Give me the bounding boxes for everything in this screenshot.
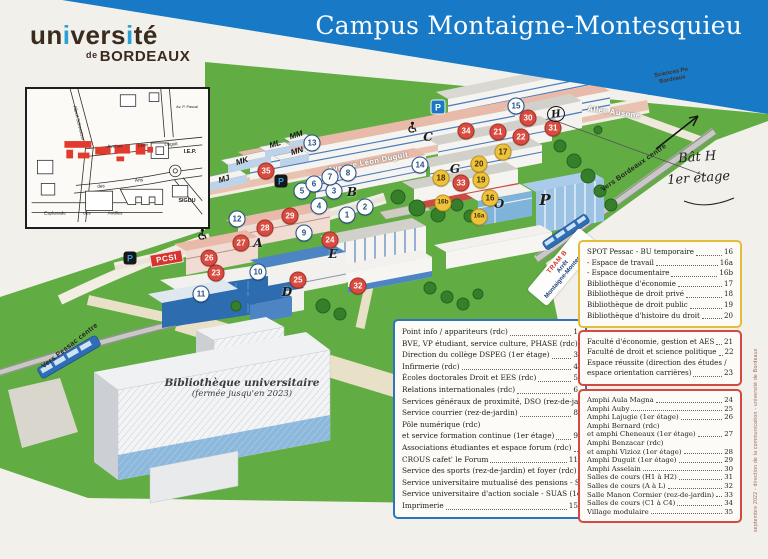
dotted-leader — [462, 369, 572, 370]
map-marker[interactable]: 33 — [453, 175, 470, 192]
map-marker[interactable]: 34 — [458, 123, 475, 140]
map-marker[interactable]: 1 — [339, 207, 356, 224]
legend-row[interactable]: Faculté de droit et science politique22 — [587, 347, 733, 357]
dotted-leader — [678, 286, 722, 287]
dotted-leader — [668, 488, 723, 489]
dotted-leader — [574, 451, 578, 452]
legend-label: Imprimerie — [402, 500, 444, 512]
legend-row[interactable]: Salle Manon Cormier (rez-de-jardin)33 — [587, 491, 733, 500]
legend-row[interactable]: Amphi Aula Magna24 — [587, 396, 733, 405]
legend-row[interactable]: BVE, VP étudiant, service culture, PHASE… — [402, 338, 578, 350]
legend-label: Espace réussite (direction des études / — [587, 358, 727, 368]
legend-label: Pôle numérique (rdc) — [402, 419, 480, 431]
legend-row[interactable]: et service formation continue (1er étage… — [402, 430, 578, 442]
dotted-leader — [538, 381, 571, 382]
legend-label: BVE, VP étudiant, service culture, PHASE… — [402, 338, 578, 350]
legend-label: Salle Manon Cormier (rez-de-jardin) — [587, 491, 714, 500]
marker-number: 22 — [517, 133, 526, 141]
marker-number: 27 — [237, 239, 246, 247]
dotted-leader — [690, 308, 722, 309]
legend-label: Bibliothèque de droit public — [587, 300, 688, 311]
legend-label: Point info / appariteurs (rdc) — [402, 326, 508, 338]
legend-number: 22 — [725, 347, 734, 357]
dotted-leader — [651, 513, 723, 514]
marker-number: 13 — [308, 139, 317, 147]
legend-number: 20 — [724, 311, 733, 322]
legend-label: Amphi Benzacar (rdc) — [587, 439, 663, 448]
legend-row[interactable]: Salles de cours (A à L)32 — [587, 482, 733, 491]
legend-row[interactable]: Pôle numérique (rdc) — [402, 419, 578, 431]
legend-label: Service universitaire mutualisé des pens… — [402, 477, 598, 489]
legend-label: espace orientation carrières) — [587, 368, 691, 378]
dotted-leader — [656, 402, 722, 403]
legend-label: Service courrier (rez-de-jardin) — [402, 407, 518, 419]
legend-row[interactable]: Amphi Benzacar (rdc) — [587, 439, 733, 448]
legend-label: Amphi Duguit (1er étage) — [587, 456, 677, 465]
marker-number: 15 — [512, 102, 521, 110]
legend-row[interactable]: Amphi Bernard (rdc) — [587, 422, 733, 431]
legend-row[interactable]: Service universitaire mutualisé des pens… — [402, 477, 578, 489]
legend-row[interactable]: Point info / appariteurs (rdc)1 — [402, 326, 578, 338]
map-marker[interactable]: 26 — [201, 250, 218, 267]
legend-row[interactable]: Imprimerie15 — [402, 500, 578, 512]
legend-label: CROUS cafet' le Forum — [402, 454, 488, 466]
legend-row[interactable]: Service des sports (rez-de-jardin) et fo… — [402, 465, 578, 477]
dotted-leader — [671, 276, 717, 277]
map-marker[interactable]: 7 — [322, 169, 339, 186]
legend-label: - Espace de travail — [587, 258, 654, 269]
legend-row[interactable]: Village modulaire35 — [587, 508, 733, 517]
map-marker[interactable]: 16b — [435, 195, 452, 212]
marker-number: 18 — [437, 174, 446, 182]
marker-number: 10 — [254, 268, 263, 276]
legend-number: 24 — [724, 396, 733, 405]
legend-amphitheatres: Amphi Aula Magna24Amphi Auby25Amphi Laju… — [578, 389, 742, 523]
legend-label: Village modulaire — [587, 508, 649, 517]
legend-label: Services généraux de proximité, DSO (rez… — [402, 396, 596, 408]
dotted-leader — [520, 416, 572, 417]
legend-number: 16a — [720, 258, 733, 269]
legend-row[interactable]: - Espace documentaire16b — [587, 268, 733, 279]
marker-number: 16a — [474, 214, 485, 221]
legend-label: et service formation continue (1er étage… — [402, 430, 554, 442]
map-marker[interactable]: 23 — [208, 265, 225, 282]
legend-label: Bibliothèque d'économie — [587, 279, 676, 290]
dotted-leader — [556, 439, 571, 440]
marker-number: 26 — [205, 254, 214, 262]
legend-row[interactable]: espace orientation carrières)23 — [587, 368, 733, 378]
marker-number: 14 — [416, 161, 425, 169]
legend-row[interactable]: Salles de cours (C1 à C4)34 — [587, 499, 733, 508]
legend-row[interactable]: et amphi Vizioz (1er étage)28 — [587, 448, 733, 457]
legend-row[interactable]: Amphi Duguit (1er étage)29 — [587, 456, 733, 465]
campus-map-page: { "header": { "title": "Campus Montaigne… — [0, 0, 768, 559]
legend-number: 31 — [724, 473, 733, 482]
dotted-leader — [719, 355, 723, 356]
dotted-leader — [681, 419, 723, 420]
legend-number: 28 — [724, 448, 733, 457]
map-marker[interactable]: 11 — [193, 286, 210, 303]
map-marker[interactable]: 14 — [412, 157, 429, 174]
marker-number: 11 — [197, 290, 205, 298]
map-marker[interactable]: 22 — [513, 129, 530, 146]
map-marker[interactable]: 35 — [258, 163, 275, 180]
legend-number: 16 — [724, 247, 733, 258]
legend-number: 27 — [724, 430, 733, 439]
marker-number: 29 — [286, 212, 295, 220]
dotted-leader — [490, 462, 566, 463]
legend-number: 23 — [724, 368, 733, 378]
marker-number: 4 — [317, 202, 321, 210]
legend-number: 15 — [569, 500, 578, 512]
legend-faculties: Faculté d'économie, gestion et AES21Facu… — [578, 330, 742, 386]
legend-row[interactable]: Salles de cours (H1 à H2)31 — [587, 473, 733, 482]
marker-number: 7 — [328, 173, 332, 181]
dotted-leader — [684, 453, 723, 454]
dotted-leader — [677, 505, 722, 506]
marker-number: 33 — [457, 179, 466, 187]
marker-number: 9 — [302, 229, 306, 237]
legend-label: - Espace documentaire — [587, 268, 669, 279]
marker-number: 8 — [346, 169, 350, 177]
legend-label: Salles de cours (A à L) — [587, 482, 666, 491]
legend-number: 32 — [724, 482, 733, 491]
legend-row[interactable]: Bibliothèque d'économie17 — [587, 279, 733, 290]
legend-label: Bibliothèque d'histoire du droit — [587, 311, 700, 322]
marker-number: 2 — [363, 203, 367, 211]
legend-number: 30 — [724, 465, 733, 474]
legend-label: SPOT Pessac - BU temporaire — [587, 247, 694, 258]
legend-row[interactable]: Relations internationales (rdc)6 — [402, 384, 578, 396]
legend-number: 16b — [719, 268, 733, 279]
map-marker[interactable]: 32 — [350, 278, 367, 295]
legend-row[interactable]: Amphi Auby25 — [587, 405, 733, 414]
marker-number: 21 — [494, 128, 503, 136]
marker-number: 12 — [233, 215, 242, 223]
legend-label: Infirmerie (rdc) — [402, 361, 460, 373]
legend-row[interactable]: Espace réussite (direction des études / — [587, 358, 733, 368]
credit-line: septembre 2022 - direction de la communi… — [753, 348, 759, 532]
map-marker[interactable]: 10 — [250, 264, 267, 281]
marker-number: 16b — [437, 200, 448, 207]
legend-row[interactable]: Direction du collège DSPEG (1er étage)3 — [402, 349, 578, 361]
legend-label: Écoles doctorales Droit et EES (rdc) — [402, 372, 536, 384]
dotted-leader — [693, 376, 721, 377]
dotted-leader — [643, 470, 722, 471]
map-marker[interactable]: 20 — [471, 156, 488, 173]
marker-number: 35 — [262, 167, 271, 175]
legend-services: Point info / appariteurs (rdc)1BVE, VP é… — [393, 319, 587, 519]
dotted-leader — [686, 297, 722, 298]
marker-number: 30 — [524, 114, 533, 122]
legend-row[interactable]: et amphi Cheneaux (1er étage)27 — [587, 430, 733, 439]
map-marker[interactable]: 8 — [340, 165, 357, 182]
map-marker[interactable]: 2 — [357, 199, 374, 216]
marker-number: 19 — [477, 176, 486, 184]
marker-number: 17 — [499, 148, 508, 156]
marker-number: 28 — [261, 224, 270, 232]
legend-label: Faculté d'économie, gestion et AES — [587, 337, 714, 347]
legend-label: Salles de cours (H1 à H2) — [587, 473, 677, 482]
marker-number: 1 — [345, 211, 349, 219]
legend-number: 33 — [724, 491, 733, 500]
handwritten-note: Bât H 1er étage — [645, 144, 752, 193]
dotted-leader — [446, 509, 567, 510]
legend-row[interactable]: Bibliothèque de droit public19 — [587, 300, 733, 311]
map-marker[interactable]: 28 — [257, 220, 274, 237]
legend-row[interactable]: - Espace de travail16a — [587, 258, 733, 269]
legend-number: 35 — [724, 508, 733, 517]
dotted-leader — [510, 335, 572, 336]
legend-row[interactable]: Faculté d'économie, gestion et AES21 — [587, 337, 733, 347]
dotted-leader — [696, 255, 722, 256]
map-marker[interactable]: 17 — [495, 144, 512, 161]
marker-number: 5 — [300, 187, 304, 195]
legend-label: Amphi Bernard (rdc) — [587, 422, 660, 431]
legend-number: 17 — [724, 279, 733, 290]
legend-label: Faculté de droit et science politique — [587, 347, 717, 357]
legend-label: Bibliothèque de droit privé — [587, 289, 684, 300]
legend-label: et amphi Vizioz (1er étage) — [587, 448, 682, 457]
legend-number: 34 — [724, 499, 733, 508]
bibliotheque-label: Bibliothèque universitaire (fermée jusqu… — [165, 377, 320, 399]
legend-row[interactable]: Amphi Lajugie (1er étage)26 — [587, 413, 733, 422]
dotted-leader — [656, 265, 718, 266]
marker-number: 34 — [462, 127, 471, 135]
map-marker[interactable]: 24 — [322, 232, 339, 249]
dotted-leader — [631, 410, 722, 411]
legend-row[interactable]: Associations étudiantes et espace forum … — [402, 442, 578, 454]
legend-label: Service des sports (rez-de-jardin) et fo… — [402, 465, 577, 477]
legend-label: Direction du collège DSPEG (1er étage) — [402, 349, 550, 361]
map-marker[interactable]: 12 — [229, 211, 246, 228]
legend-number: 21 — [724, 337, 733, 347]
legend-label: Relations internationales (rdc) — [402, 384, 515, 396]
legend-row[interactable]: Services généraux de proximité, DSO (rez… — [402, 396, 578, 408]
legend-row[interactable]: Écoles doctorales Droit et EES (rdc)5 — [402, 372, 578, 384]
marker-number: 24 — [326, 236, 335, 244]
map-marker[interactable]: 6 — [306, 176, 323, 193]
marker-number: 31 — [549, 124, 558, 132]
dotted-leader — [716, 496, 722, 497]
dotted-leader — [698, 436, 723, 437]
map-marker[interactable]: 27 — [233, 235, 250, 252]
map-marker[interactable]: 16 — [482, 190, 499, 207]
legend-row[interactable]: Bibliothèque de droit privé18 — [587, 289, 733, 300]
dotted-leader — [716, 344, 722, 345]
map-marker[interactable]: 4 — [311, 198, 328, 215]
legend-row[interactable]: Service universitaire d'action sociale -… — [402, 488, 578, 500]
dotted-leader — [702, 318, 722, 319]
legend-row[interactable]: SPOT Pessac - BU temporaire16 — [587, 247, 733, 258]
map-marker[interactable]: 9 — [296, 225, 313, 242]
map-marker[interactable]: 16a — [471, 209, 488, 226]
legend-label: Amphi Auby — [587, 405, 629, 414]
dotted-leader — [679, 462, 723, 463]
marker-number: 23 — [212, 269, 221, 277]
legend-label: et amphi Cheneaux (1er étage) — [587, 430, 696, 439]
map-marker[interactable]: 18 — [433, 170, 450, 187]
marker-number: 32 — [354, 282, 363, 290]
dotted-leader — [517, 393, 571, 394]
marker-number: 6 — [312, 180, 316, 188]
legend-number: 11 — [569, 454, 578, 466]
legend-row[interactable]: Infirmerie (rdc)4 — [402, 361, 578, 373]
legend-number: 18 — [724, 289, 733, 300]
marker-number: 20 — [475, 160, 484, 168]
legend-row[interactable]: Bibliothèque d'histoire du droit20 — [587, 311, 733, 322]
marker-number: 25 — [294, 276, 303, 284]
legend-label: Salles de cours (C1 à C4) — [587, 499, 675, 508]
legend-libraries: SPOT Pessac - BU temporaire16- Espace de… — [578, 240, 742, 328]
legend-label: Amphi Aula Magna — [587, 396, 654, 405]
map-marker[interactable]: 13 — [304, 135, 321, 152]
map-marker[interactable]: 21 — [490, 124, 507, 141]
marker-number: 16 — [486, 194, 495, 202]
legend-label: Associations étudiantes et espace forum … — [402, 442, 572, 454]
marker-number: 3 — [332, 187, 336, 195]
dotted-leader — [679, 479, 722, 480]
map-marker[interactable]: 30 — [520, 110, 537, 127]
map-marker[interactable]: 25 — [290, 272, 307, 289]
legend-number: 19 — [724, 300, 733, 311]
legend-label: Amphi Lajugie (1er étage) — [587, 413, 679, 422]
legend-number: 26 — [724, 413, 733, 422]
legend-row[interactable]: CROUS cafet' le Forum11 — [402, 454, 578, 466]
dotted-leader — [552, 358, 572, 359]
map-marker[interactable]: 19 — [473, 172, 490, 189]
map-marker[interactable]: 29 — [282, 208, 299, 225]
legend-row[interactable]: Service courrier (rez-de-jardin)8 — [402, 407, 578, 419]
legend-number: 25 — [724, 405, 733, 414]
legend-number: 29 — [724, 456, 733, 465]
map-marker[interactable]: 31 — [545, 120, 562, 137]
